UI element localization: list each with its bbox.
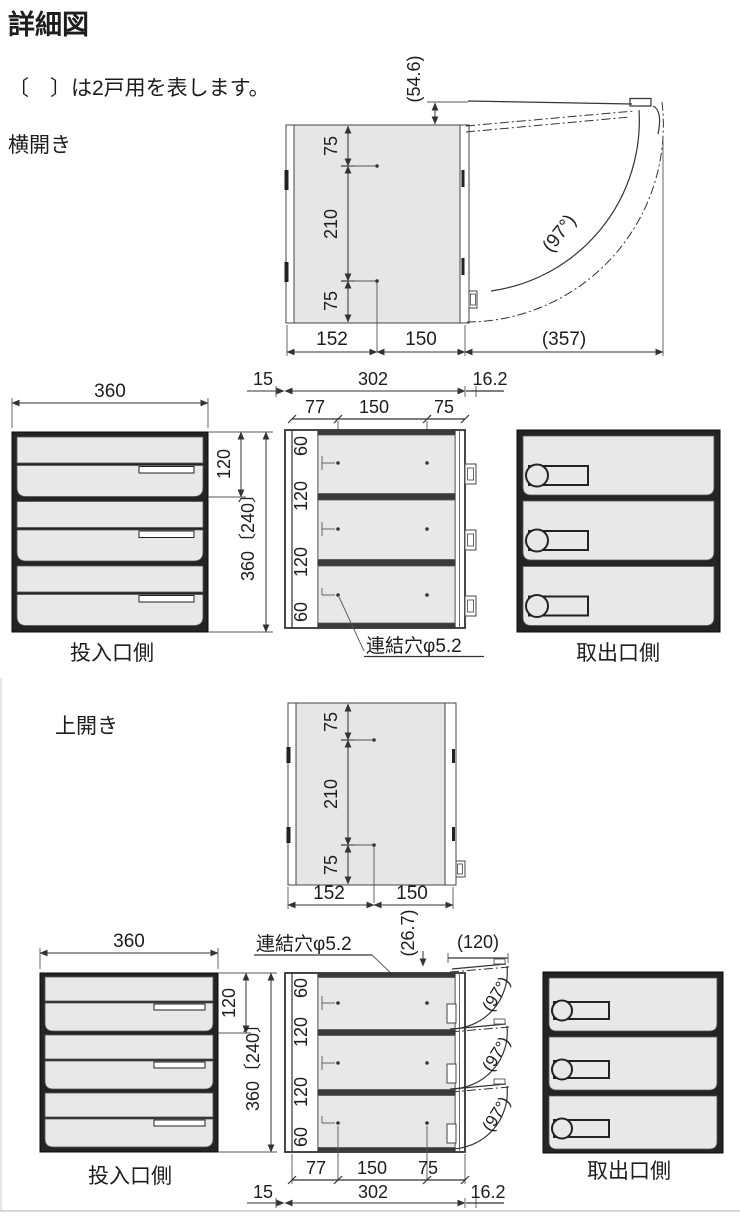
dim-angle: (97°) bbox=[478, 1033, 514, 1074]
dim-60: 60 bbox=[291, 436, 311, 456]
caption-outlet-side: 取出口側 bbox=[587, 1160, 671, 1183]
dim-angle: (97°) bbox=[478, 1093, 514, 1134]
door-latch bbox=[465, 596, 476, 616]
dim-150: 150 bbox=[396, 883, 428, 904]
pull-slot bbox=[154, 1120, 205, 1126]
dim-75-bottom: 75 bbox=[321, 855, 341, 875]
dim-120: 120 bbox=[219, 988, 239, 1018]
dim-60b: 60 bbox=[291, 1127, 311, 1147]
dim-150-offset: 150 bbox=[359, 397, 389, 417]
hinge-mark bbox=[462, 170, 465, 187]
dial-lock bbox=[552, 1001, 572, 1021]
dim-210: 210 bbox=[321, 209, 341, 239]
plan-door-edge bbox=[460, 125, 469, 323]
dim-120a: 120 bbox=[291, 1017, 311, 1047]
dim-120a: 120 bbox=[291, 481, 311, 511]
pull-slot bbox=[154, 1062, 205, 1068]
outlet-compartment bbox=[549, 1096, 717, 1149]
dim-75-offset: 75 bbox=[434, 397, 454, 417]
caption-inlet-side: 投入口側 bbox=[70, 642, 154, 665]
hole-note: 連結穴φ5.2 bbox=[256, 933, 352, 955]
door-latch bbox=[447, 1004, 456, 1023]
yoko-plan-view: 75 210 75 (54.6) (97°) 152 150 (357) bbox=[285, 55, 664, 356]
open-lid-end bbox=[653, 106, 660, 134]
dim-lid-open: (120) bbox=[457, 932, 499, 952]
dial-lock bbox=[526, 595, 548, 617]
plan-left-plate bbox=[288, 703, 296, 885]
dim-120b: 120 bbox=[291, 547, 311, 577]
section-label-yoko: 横開き bbox=[8, 134, 71, 157]
dim-152: 152 bbox=[313, 883, 345, 904]
dim-120b: 120 bbox=[291, 1077, 311, 1107]
dim-75-top: 75 bbox=[321, 712, 341, 732]
detail-drawing-page: 詳細図 〔 〕は2戸用を表します。 横開き 75 210 75 bbox=[0, 0, 740, 1222]
ue-rear-view: (26.7) 連結穴φ5.2 (120) 60 120 120 60 bbox=[247, 909, 514, 1208]
bracket-note: 〔 〕は2戸用を表します。 bbox=[8, 77, 270, 100]
dim-75-offset: 75 bbox=[418, 1158, 438, 1178]
dim-60b: 60 bbox=[291, 602, 311, 622]
dim-210: 210 bbox=[321, 779, 341, 809]
dial-lock bbox=[552, 1119, 572, 1139]
dial-lock bbox=[526, 530, 548, 552]
dim-360: 360 bbox=[113, 931, 145, 952]
dim-360: 360 bbox=[94, 381, 126, 402]
pull-slot bbox=[154, 1004, 205, 1010]
dial-lock bbox=[552, 1060, 572, 1080]
hinge-mark bbox=[285, 170, 289, 190]
dim-total-height: 360〔240〕 bbox=[238, 485, 258, 581]
dim-swing-angle: (97°) bbox=[539, 211, 581, 257]
plan-left-plate bbox=[286, 125, 294, 323]
yoko-outlet-view: 取出口側 bbox=[517, 430, 720, 665]
detail-drawing: 詳細図 〔 〕は2戸用を表します。 横開き 75 210 75 bbox=[0, 0, 740, 1222]
outlet-compartment bbox=[523, 501, 714, 560]
outlet-compartment bbox=[523, 567, 714, 626]
yoko-rear-view: 15 302 16.2 77 150 75 60 120 120 60 bbox=[247, 369, 508, 657]
pull-slot bbox=[139, 467, 194, 474]
dim-60: 60 bbox=[291, 978, 311, 998]
section-label-ue: 上開き bbox=[55, 715, 118, 738]
front-compartment bbox=[45, 977, 213, 1031]
caption-outlet-side: 取出口側 bbox=[576, 642, 660, 665]
plan-door-edge bbox=[445, 703, 456, 885]
dim-75-bottom: 75 bbox=[321, 291, 341, 311]
dim-302: 302 bbox=[358, 1182, 388, 1202]
plan-box-body bbox=[296, 703, 445, 885]
dim-302: 302 bbox=[358, 369, 388, 389]
open-lid-top-edge bbox=[468, 101, 632, 104]
outlet-compartment bbox=[549, 978, 717, 1031]
hinge-mark bbox=[462, 258, 465, 275]
dial-lock bbox=[526, 465, 548, 487]
dim-77: 77 bbox=[305, 397, 325, 417]
swing-arc-inner bbox=[491, 110, 639, 291]
dim-150-offset: 150 bbox=[357, 1158, 387, 1178]
ue-plan-view: 75 210 75 152 150 bbox=[287, 703, 466, 909]
pull-slot bbox=[139, 531, 194, 538]
door-latch bbox=[447, 1064, 456, 1083]
front-compartment bbox=[17, 566, 203, 626]
dim-angle: (97°) bbox=[478, 973, 514, 1014]
dim-lid-gap: (26.7) bbox=[398, 909, 418, 956]
door-latch bbox=[447, 1124, 456, 1143]
outlet-compartment bbox=[549, 1037, 717, 1090]
door-latch bbox=[465, 530, 476, 550]
dim-total-height: 360〔240〕 bbox=[243, 1015, 263, 1111]
pull-slot bbox=[139, 596, 194, 603]
front-compartment bbox=[45, 1093, 213, 1147]
dim-152: 152 bbox=[316, 329, 348, 350]
dim-lid-gap: (54.6) bbox=[404, 55, 424, 102]
front-compartment bbox=[17, 502, 203, 562]
front-compartment bbox=[45, 1035, 213, 1089]
dim-120: 120 bbox=[214, 449, 234, 479]
page-title: 詳細図 bbox=[8, 9, 89, 40]
dim-75-top: 75 bbox=[321, 136, 341, 156]
door-latch bbox=[465, 464, 476, 484]
dim-16-2: 16.2 bbox=[472, 369, 507, 389]
dim-15: 15 bbox=[253, 1182, 273, 1202]
outlet-compartment bbox=[523, 436, 714, 495]
dim-150: 150 bbox=[405, 329, 437, 350]
ue-outlet-view: 取出口側 bbox=[543, 972, 723, 1183]
hole-note: 連結穴φ5.2 bbox=[366, 635, 462, 657]
hinge-mark bbox=[285, 262, 289, 282]
open-lid-latch bbox=[630, 99, 651, 107]
dim-15: 15 bbox=[253, 369, 273, 389]
dim-77: 77 bbox=[306, 1158, 326, 1178]
dim-357: (357) bbox=[542, 329, 586, 350]
caption-inlet-side: 投入口側 bbox=[88, 1165, 172, 1188]
front-compartment bbox=[17, 437, 203, 497]
ue-front-view: 360 120 360〔240〕 投入口側 bbox=[40, 931, 277, 1188]
yoko-front-view: 360 120 360〔240〕 投入口側 bbox=[12, 381, 273, 665]
dim-16-2: 16.2 bbox=[470, 1182, 505, 1202]
